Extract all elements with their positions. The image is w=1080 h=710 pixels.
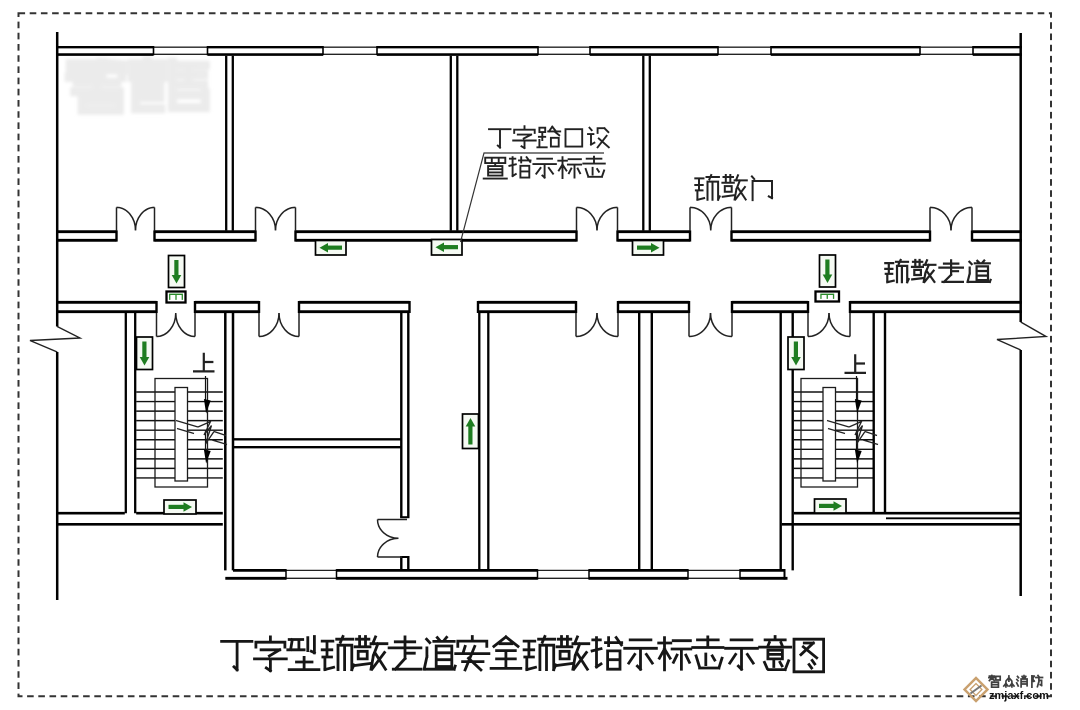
- svg-text:zmjaxf.com: zmjaxf.com: [989, 690, 1049, 702]
